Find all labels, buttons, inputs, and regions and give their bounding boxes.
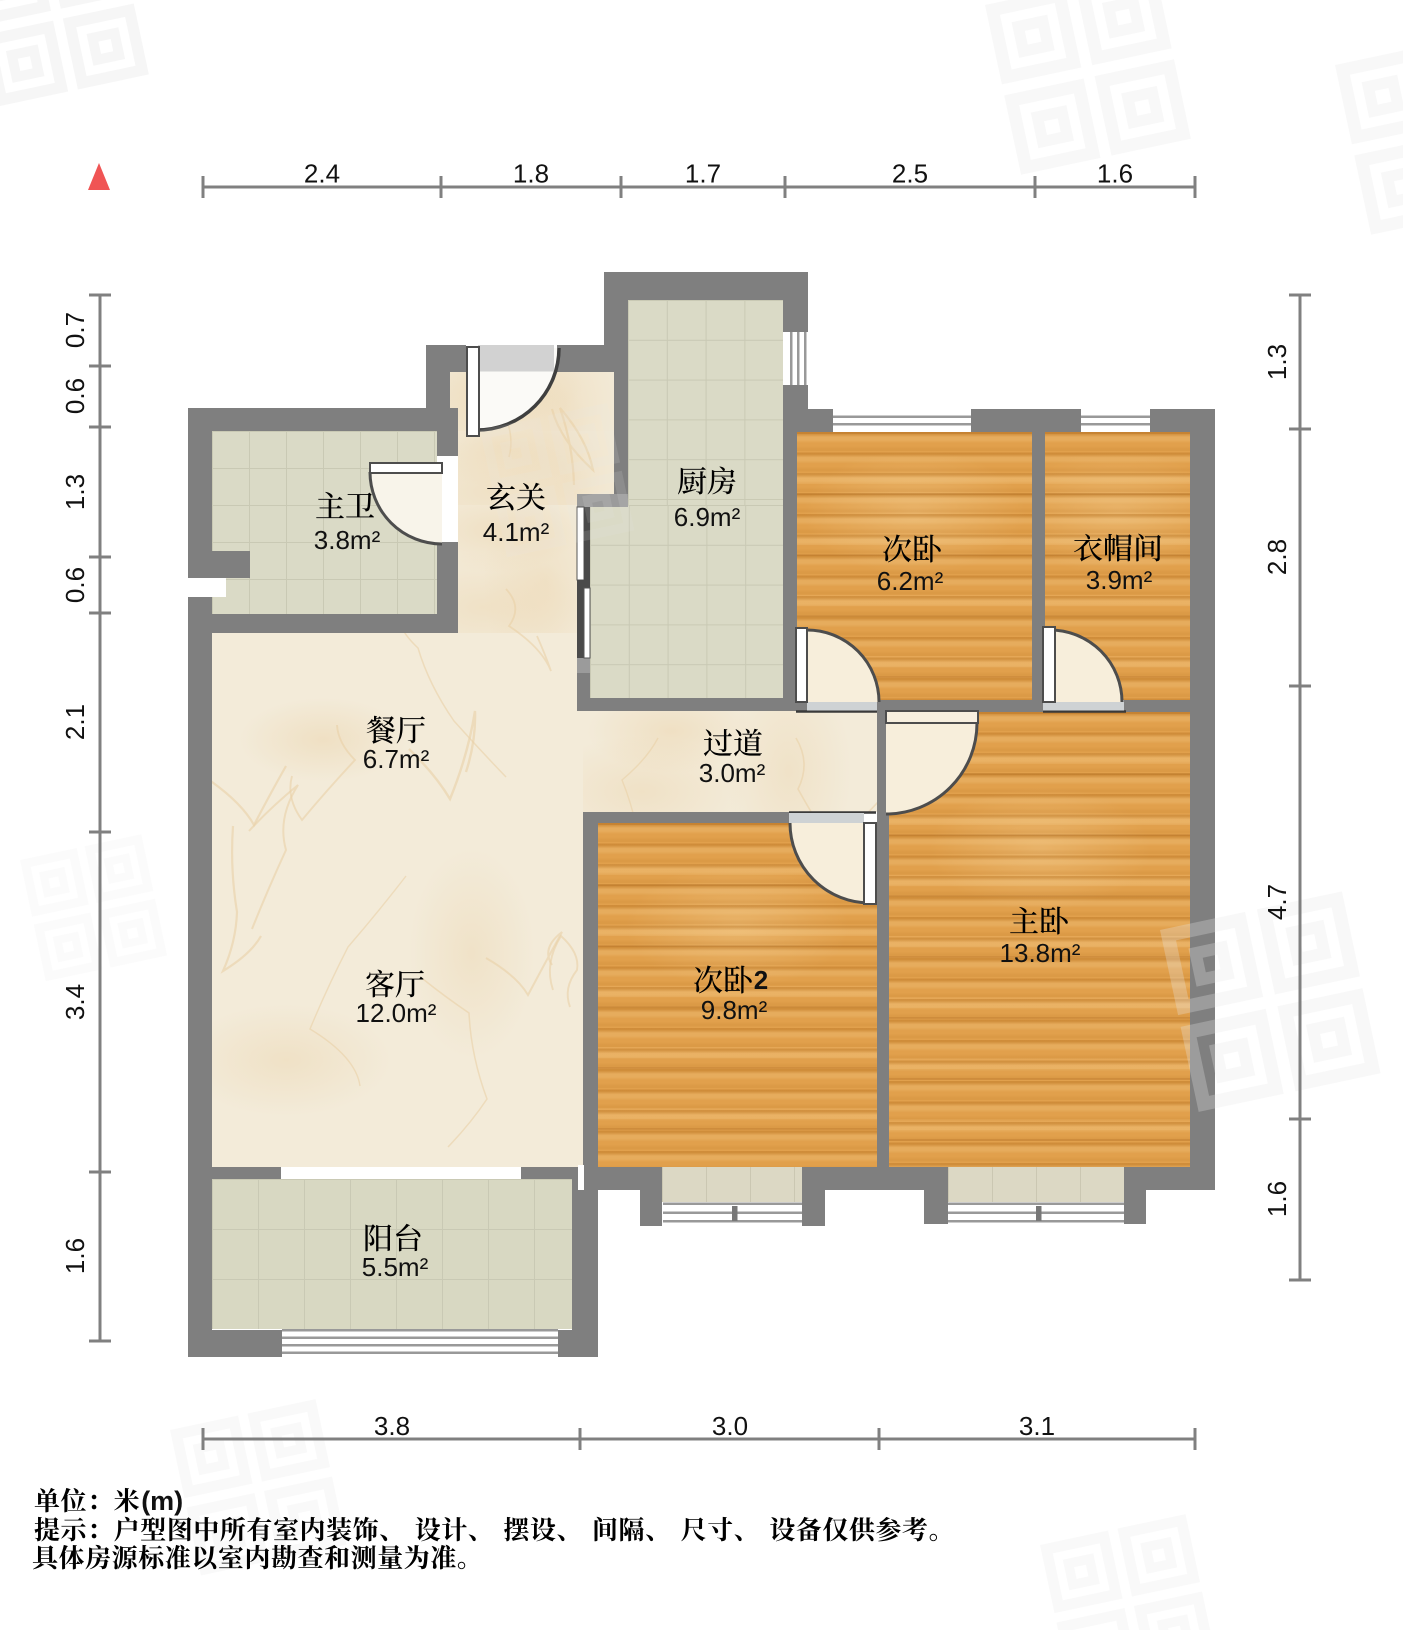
svg-text:(m): (m) xyxy=(141,1486,183,1516)
svg-text:3.8m²: 3.8m² xyxy=(314,525,381,555)
svg-text:4.7: 4.7 xyxy=(1262,884,1292,920)
svg-text:1.6: 1.6 xyxy=(1097,159,1133,189)
svg-text:12.0m²: 12.0m² xyxy=(356,998,437,1028)
svg-text:3.0m²: 3.0m² xyxy=(699,758,766,788)
svg-text:2.1: 2.1 xyxy=(60,704,90,740)
svg-text:2.8: 2.8 xyxy=(1262,539,1292,575)
svg-text:6.2m²: 6.2m² xyxy=(877,566,944,596)
svg-text:1.3: 1.3 xyxy=(1262,344,1292,380)
svg-text:3.9m²: 3.9m² xyxy=(1086,565,1153,595)
svg-text:1.6: 1.6 xyxy=(1262,1181,1292,1217)
svg-text:0.6: 0.6 xyxy=(60,567,90,603)
svg-text:2.4: 2.4 xyxy=(304,159,340,189)
svg-text:4.1m²: 4.1m² xyxy=(483,517,550,547)
svg-text:3.1: 3.1 xyxy=(1019,1411,1055,1441)
svg-text:3.4: 3.4 xyxy=(60,984,90,1020)
svg-text:3.8: 3.8 xyxy=(374,1411,410,1441)
svg-text:5.5m²: 5.5m² xyxy=(362,1252,429,1282)
svg-text:1.7: 1.7 xyxy=(685,159,721,189)
svg-text:1.3: 1.3 xyxy=(60,474,90,510)
svg-text:6.7m²: 6.7m² xyxy=(363,744,430,774)
svg-text:2.5: 2.5 xyxy=(892,159,928,189)
svg-text:0.7: 0.7 xyxy=(60,312,90,348)
svg-text:9.8m²: 9.8m² xyxy=(701,995,768,1025)
svg-text:0.6: 0.6 xyxy=(60,378,90,414)
svg-text:1.6: 1.6 xyxy=(60,1238,90,1274)
svg-text:1.8: 1.8 xyxy=(513,159,549,189)
svg-text:6.9m²: 6.9m² xyxy=(674,502,741,532)
svg-text:3.0: 3.0 xyxy=(712,1411,748,1441)
svg-text:2: 2 xyxy=(754,965,768,995)
svg-text:13.8m²: 13.8m² xyxy=(1000,938,1081,968)
